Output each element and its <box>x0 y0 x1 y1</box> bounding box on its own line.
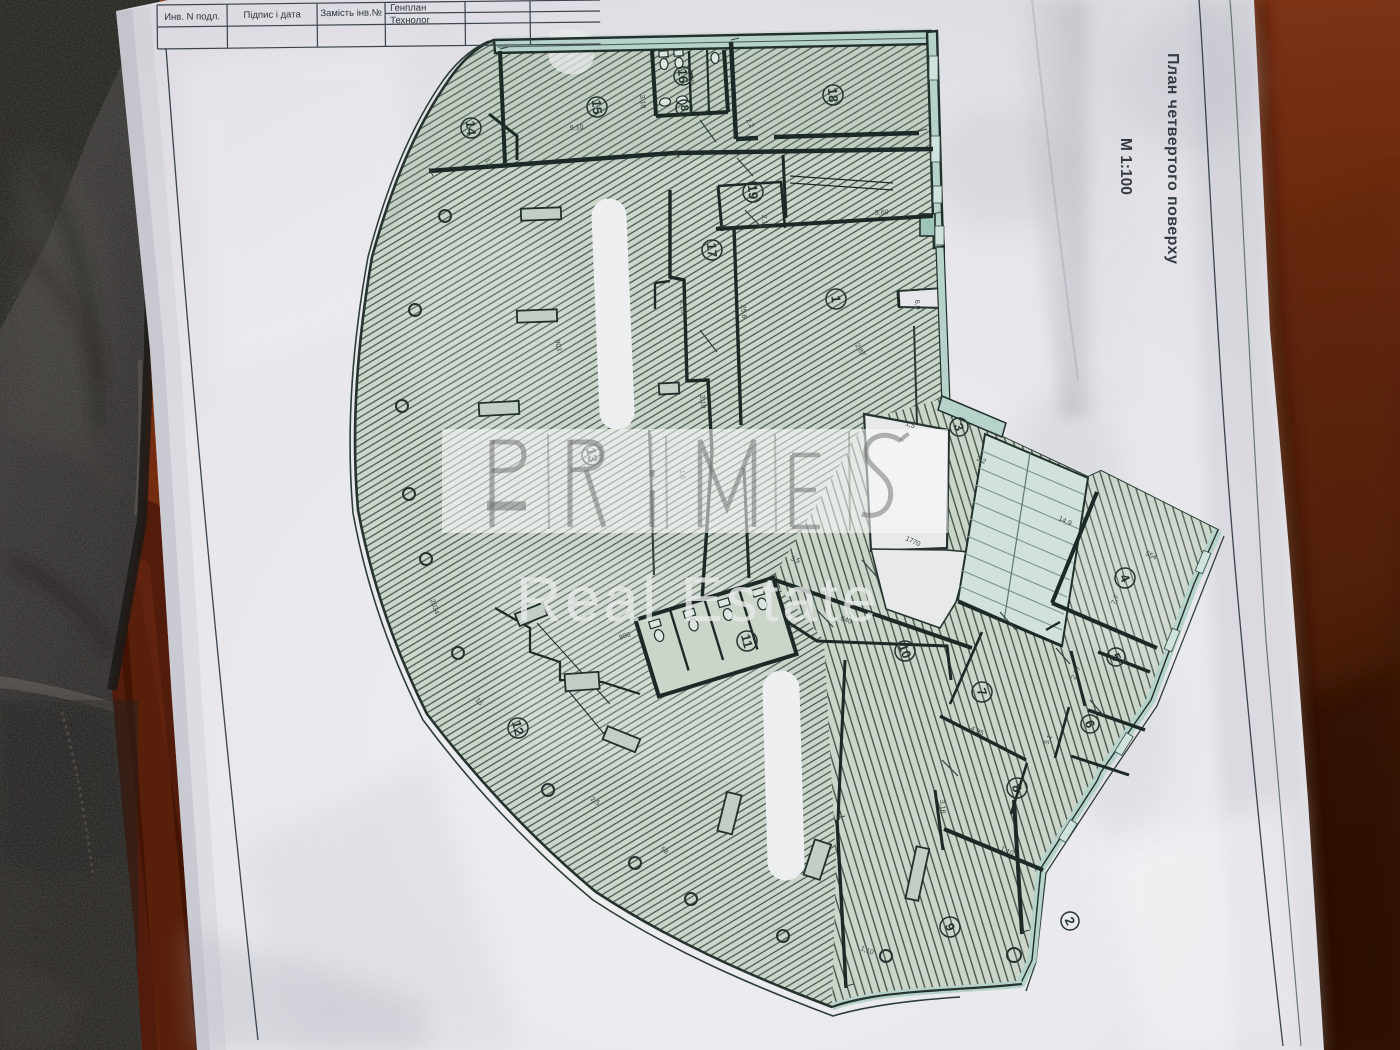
svg-text:3,10: 3,10 <box>698 395 706 409</box>
svg-text:Технолог: Технолог <box>390 15 430 26</box>
svg-text:1,90: 1,90 <box>686 70 694 84</box>
svg-text:3,10: 3,10 <box>638 95 646 109</box>
svg-text:8: 8 <box>678 104 690 111</box>
svg-text:18: 18 <box>825 87 841 103</box>
svg-text:План четвертого поверху: План четвертого поверху <box>1164 53 1181 264</box>
svg-text:Инв. N подл.: Инв. N подл. <box>164 11 220 23</box>
svg-text:1: 1 <box>828 295 844 304</box>
svg-text:17: 17 <box>704 242 720 258</box>
svg-text:3,18: 3,18 <box>938 800 946 814</box>
svg-text:19: 19 <box>745 184 761 200</box>
svg-text:15: 15 <box>589 99 605 115</box>
svg-text:Підпис і дата: Підпис і дата <box>243 9 301 21</box>
svg-text:М 1:100: М 1:100 <box>1117 138 1134 195</box>
svg-text:Real Estate: Real Estate <box>516 565 880 635</box>
svg-text:3,10: 3,10 <box>678 300 686 314</box>
svg-text:6,0: 6,0 <box>913 300 921 310</box>
svg-text:9,10: 9,10 <box>570 124 584 132</box>
svg-text:2,16: 2,16 <box>760 215 768 229</box>
svg-text:Замість інв.№: Замість інв.№ <box>320 7 382 19</box>
svg-text:Генплан: Генплан <box>390 2 426 13</box>
svg-text:14: 14 <box>463 120 479 136</box>
svg-text:25,6: 25,6 <box>739 305 747 319</box>
svg-text:5,60: 5,60 <box>875 209 889 217</box>
